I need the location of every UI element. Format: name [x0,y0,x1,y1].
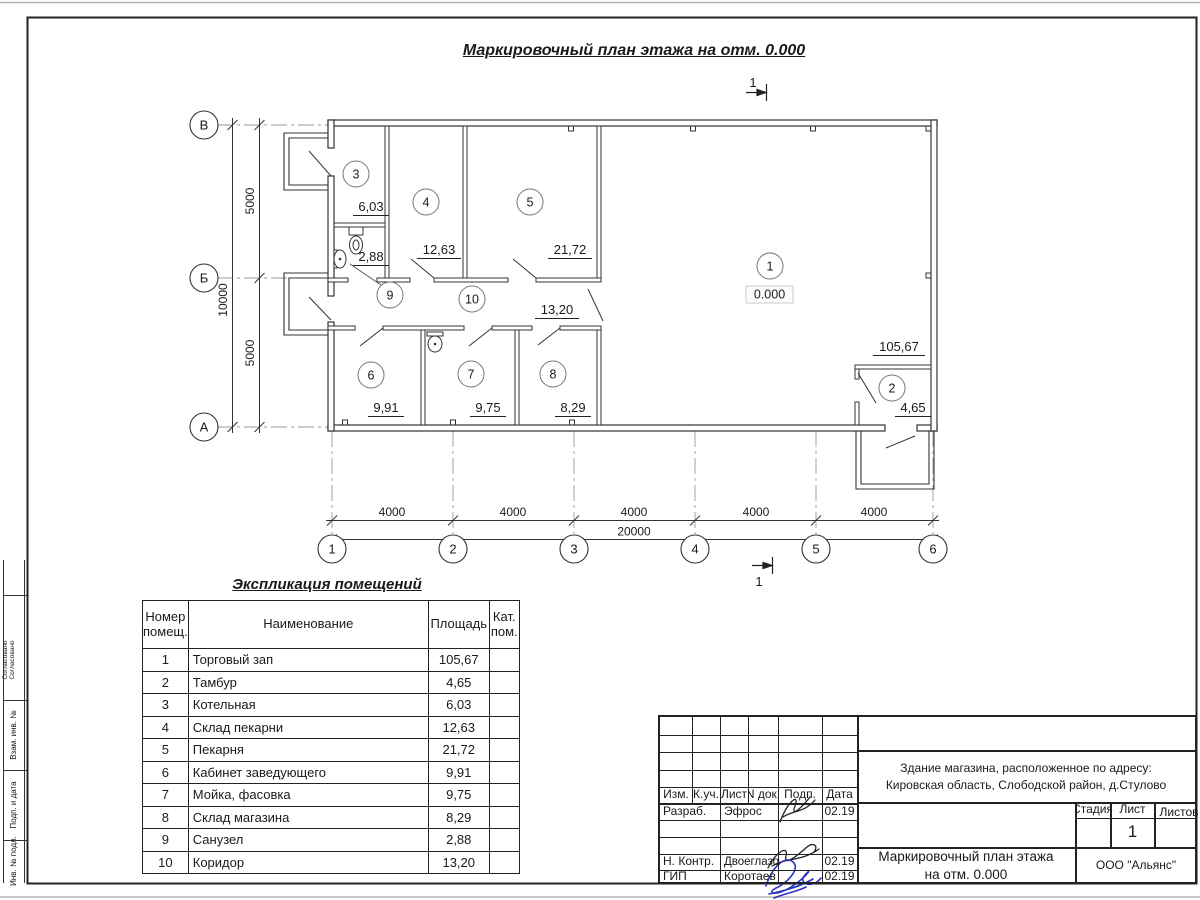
dim-bay: 4000 [861,505,888,519]
cell-area: 12,63 [428,716,489,739]
room-num: 5 [527,196,534,210]
cell-name: Коридор [188,851,428,874]
room-area-labels: 6,03 2,88 12,63 21,72 13,20 9,91 9,75 8,… [358,199,925,415]
cell-num: 6 [143,761,189,784]
tb-sheets-label: Листов [1155,805,1200,820]
axis-bottom-2: 2 [449,542,456,557]
strip-podp-label: Подп. и дата [9,781,18,829]
strip-approval-label: Согласовано [9,640,16,679]
dim-bay: 4000 [379,505,406,519]
tb-stage-label: Стадия [1075,802,1110,817]
tb-col-podp: Подп. [778,787,822,803]
cell-area: 21,72 [428,739,489,762]
tb-doc-title: Маркировочный план этажана отм. 0.000 [857,847,1075,884]
cell-num: 3 [143,694,189,717]
room-num: 4 [423,196,430,210]
section-label-top: 1 [749,75,756,90]
tb-col-ndok: N док. [748,787,778,803]
room-area: 4,65 [900,400,925,415]
tb-sheet-number: 1 [1111,819,1154,846]
sink-backplate [427,332,443,336]
dim-bay: 4000 [500,505,527,519]
toilet-tank [349,227,363,235]
cell-cat [489,694,519,717]
interior-walls [328,126,931,425]
left-strip-labels: Согласовано Согласовано Взам. инв. № Под… [2,640,18,886]
cell-cat [489,806,519,829]
cell-num: 7 [143,784,189,807]
room-num: 3 [353,168,360,182]
table-row: 3 Котельная 6,03 [143,694,520,717]
table-row: 4 Склад пекарни 12,63 [143,716,520,739]
cell-cat [489,739,519,762]
dim-left-half: 5000 [243,339,257,366]
section-label-bottom: 1 [755,574,762,589]
cell-area: 13,20 [428,851,489,874]
tb-date-nkontr: 02.19 [822,854,857,870]
room-area: 12,63 [423,242,456,257]
table-row: 8 Склад магазина 8,29 [143,806,520,829]
tb-company: ООО "Альянс" [1077,847,1195,884]
table-row: 7 Мойка, фасовка 9,75 [143,784,520,807]
room9-leader [350,264,381,285]
cell-num: 1 [143,649,189,672]
room-num: 10 [465,293,479,307]
room-num: 7 [468,368,475,382]
axis-left-a: А [200,420,209,435]
cell-name: Тамбур [188,671,428,694]
axis-bottom-4: 4 [691,542,698,557]
room-area: 2,88 [358,249,383,264]
cell-cat [489,761,519,784]
axis-bottom-3: 3 [570,542,577,557]
cell-area: 9,75 [428,784,489,807]
table-header-row: Номерпомещ. Наименование Площадь Кат.пом… [143,601,520,649]
axis-bottom-5: 5 [812,542,819,557]
room-area: 6,03 [358,199,383,214]
tb-object-address: Здание магазина, расположенное по адресу… [857,751,1195,802]
col-header-num: Номерпомещ. [143,601,189,649]
drawing-sheet: Согласовано Согласовано Взам. инв. № Под… [0,0,1200,900]
tb-col-kuch: К.уч. [692,787,720,803]
cell-num: 2 [143,671,189,694]
tb-name-nkontr: Двоеглазов [721,854,780,870]
room-area: 13,20 [541,302,574,317]
cell-cat [489,829,519,852]
title-block: Изм. К.уч. Лист N док. Подп. Дата Разраб… [658,715,1197,884]
cell-area: 4,65 [428,671,489,694]
axis-bottom-6: 6 [929,542,936,557]
room-area: 8,29 [560,400,585,415]
axis-bottom-1: 1 [328,542,335,557]
dim-bay: 4000 [743,505,770,519]
col-header-area: Площадь [428,601,489,649]
strip-inv-label: Инв. № подл. [9,836,18,886]
dim-left-half: 5000 [243,187,257,214]
cell-num: 9 [143,829,189,852]
table-row: 6 Кабинет заведующего 9,91 [143,761,520,784]
cell-area: 2,88 [428,829,489,852]
room-area: 105,67 [879,339,919,354]
building-walls [328,120,937,431]
col-header-cat: Кат.пом. [489,601,519,649]
cell-area: 6,03 [428,694,489,717]
tb-date-razrab: 02.19 [822,804,857,820]
table-row: 1 Торговый зап 105,67 [143,649,520,672]
cell-name: Торговый зап [188,649,428,672]
room-num: 2 [889,382,896,396]
cell-cat [489,851,519,874]
cell-num: 4 [143,716,189,739]
cell-name: Мойка, фасовка [188,784,428,807]
tb-role-razrab: Разраб. [660,804,722,820]
room-num: 8 [550,368,557,382]
tb-name-razrab: Эфрос [721,804,780,820]
cell-cat [489,671,519,694]
room-num: 6 [368,369,375,383]
cell-num: 10 [143,851,189,874]
tb-col-izm: Изм. [660,787,692,803]
strip-vzam-label: Взам. инв. № [9,710,18,760]
cell-name: Склад магазина [188,806,428,829]
table-row: 2 Тамбур 4,65 [143,671,520,694]
axis-left-b: Б [200,271,209,286]
dim-bay: 4000 [621,505,648,519]
strip-approval-label: Согласовано [2,640,9,679]
room-area: 21,72 [554,242,587,257]
tb-date-gip: 02.19 [822,870,857,884]
col-header-name: Наименование [188,601,428,649]
dim-left-total: 10000 [216,283,230,317]
tb-col-list: Лист [720,787,748,803]
table-row: 10 Коридор 13,20 [143,851,520,874]
room-num: 9 [387,289,394,303]
elevation-value: 0.000 [754,288,785,302]
cell-cat [489,649,519,672]
table-row: 5 Пекарня 21,72 [143,739,520,762]
room-area: 9,91 [373,400,398,415]
cell-name: Санузел [188,829,428,852]
cell-name: Кабинет заведующего [188,761,428,784]
explication-title: Экспликация помещений [207,576,447,593]
section-marks [746,84,773,574]
sheet-title: Маркировочный план этажа на отм. 0.000 [454,42,814,60]
explication-table: Номерпомещ. Наименование Площадь Кат.пом… [142,600,520,874]
axis-markers: В Б А 1 2 3 4 5 6 [190,111,947,563]
cell-area: 8,29 [428,806,489,829]
cell-name: Котельная [188,694,428,717]
cell-name: Склад пекарни [188,716,428,739]
tb-col-data: Дата [822,787,857,803]
cell-cat [489,784,519,807]
cell-cat [489,716,519,739]
room-area: 9,75 [475,400,500,415]
cell-name: Пекарня [188,739,428,762]
tb-name-gip: Коротаев [721,870,780,884]
tb-role-nkontr: Н. Контр. [660,854,722,870]
cell-num: 8 [143,806,189,829]
exterior-structures [284,133,934,489]
room-num: 1 [767,260,774,274]
axis-left-v: В [200,118,209,133]
table-row: 9 Санузел 2,88 [143,829,520,852]
cell-area: 105,67 [428,649,489,672]
cell-area: 9,91 [428,761,489,784]
dim-total: 20000 [617,525,651,539]
room-markers: 1 2 3 4 5 6 7 8 9 10 [343,161,905,401]
tb-role-gip: ГИП [660,870,722,884]
cell-num: 5 [143,739,189,762]
tb-sheet-label: Лист [1111,802,1154,817]
